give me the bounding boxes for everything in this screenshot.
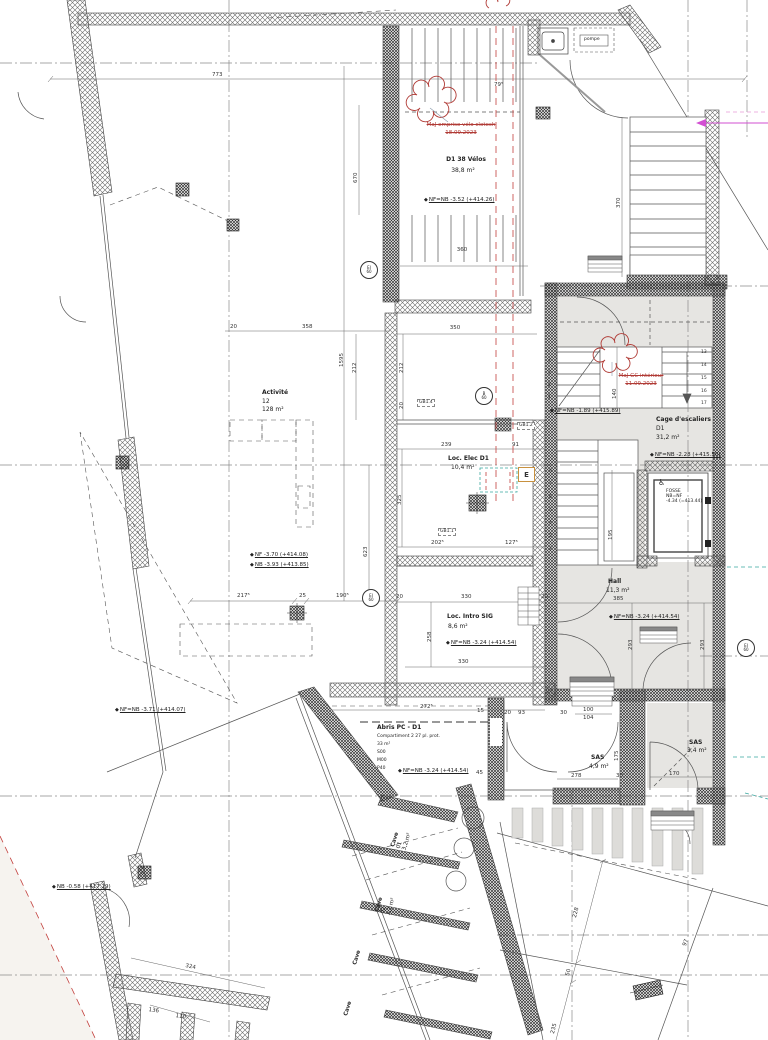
room-area-loc-intro: 8,6 m² <box>448 624 468 631</box>
room-label-cave1: Cave 01 3,2 m² <box>390 829 412 852</box>
electrical-tag-letter: E <box>524 471 529 479</box>
level-velos: ◆NF=NB -3.52 (+414.26) <box>424 197 495 203</box>
fire-tag-bottom: 60 <box>368 598 373 603</box>
stair-number: 16 <box>701 389 707 394</box>
dim-385: 385 <box>613 596 624 603</box>
dim-330b: 330 <box>458 659 469 666</box>
level-cage-bottom: ◆NF=NB -2.28 (+415.50) <box>650 452 721 458</box>
annotation-layer: D1 38 Vélos 38,8 m² Activité 12 128 m² L… <box>0 0 768 1040</box>
stair-number: 17 <box>701 401 707 406</box>
dim-324: 324 <box>185 963 197 972</box>
dim-623: 623 <box>363 547 370 558</box>
level-intro: ◆NF=NB -3.24 (+414.54) <box>446 640 517 646</box>
stair-number: 5 <box>549 508 552 513</box>
level-marker-icon: ◆ <box>52 884 56 890</box>
dim-293b: 293 <box>700 640 707 651</box>
abris-s00: S00 <box>377 750 386 755</box>
fire-tag-bottom: 60 <box>743 648 748 653</box>
revision-note-gc-1: MaJ GC intérieur <box>619 373 664 380</box>
dim-15: 15 <box>477 708 484 715</box>
level-hall-text: NF=NB -3.24 (+414.54) <box>614 614 680 620</box>
fire-rating-tag: EI60 <box>360 261 378 279</box>
room-area-hall: 11,3 m² <box>606 588 630 595</box>
stair-number: 14 <box>701 363 707 368</box>
room-label-loc-elec: Loc. Elec D1 <box>448 456 489 463</box>
dim-20b: 20 <box>399 402 406 409</box>
revision-note-velo-1: MaJ emprise vélo clotech <box>427 122 496 129</box>
room-label-hall: Hall <box>608 579 621 586</box>
dim-30b: 30 <box>616 773 623 780</box>
dim-175: 175 <box>614 751 621 762</box>
dim-370: 370 <box>616 198 623 209</box>
level-exterior-text: NB -0.58 (+417.19) <box>57 884 111 890</box>
room-area-sas1: 4,9 m² <box>589 764 609 771</box>
dim-20c: 20 <box>396 594 403 601</box>
dim-258: 258 <box>427 632 434 643</box>
dim-45: 45 <box>476 770 483 777</box>
dim-140: 140 <box>612 389 619 400</box>
dim-104: 104 <box>583 715 594 722</box>
room-label-cave2: Cave 02 3,2 m² <box>374 894 396 917</box>
room-label-abris: Abris PC - D1 <box>377 725 421 732</box>
abris-compartiment: Compartiment 2 27 pl. prot. <box>377 734 440 739</box>
level-abris-text: NF=NB -3.24 (+414.54) <box>403 768 469 774</box>
stair-number: 7 <box>549 482 552 487</box>
level-activite-nf: ◆NF -3.70 (+414.08) <box>250 552 308 558</box>
level-door-text: NF=NB -3.71 (+414.07) <box>120 707 186 713</box>
fire-rating-tag: B60 <box>475 387 493 405</box>
dim-79: 79⁵ <box>494 82 503 89</box>
fire-rating-tag: EI60 <box>737 639 755 657</box>
room-area-velos: 38,8 m² <box>451 168 475 175</box>
stair-number: 8 <box>549 469 552 474</box>
dim-20a: 20 <box>230 324 237 331</box>
dim-30a: 30 <box>560 710 567 717</box>
level-door: ◆NF=NB -3.71 (+414.07) <box>115 707 186 713</box>
dim-195: 195 <box>608 530 615 541</box>
level-marker-icon: ◆ <box>115 707 119 713</box>
dim-20e: 20 <box>504 710 511 717</box>
level-activite-nb: ◆NB -3.93 (+413.85) <box>250 562 309 568</box>
room-label-sas2: SAS <box>689 740 702 747</box>
level-activite-nf-text: NF -3.70 (+414.08) <box>255 552 308 558</box>
stair-number: 3 <box>548 371 551 376</box>
level-exterior: ◆NB -0.58 (+417.19) <box>52 884 111 890</box>
abris-area: 33 m² <box>377 742 390 747</box>
tag-gb14: GB1.4 <box>417 399 435 407</box>
wheelchair-icon: ♿ <box>658 478 665 487</box>
pompe-tag: pompe <box>584 37 600 42</box>
dim-360: 360 <box>457 247 468 254</box>
abris-p40: P40 <box>377 766 385 771</box>
level-marker-icon: ◆ <box>424 197 428 203</box>
room-area-loc-elec: 10,4 m² <box>451 465 475 472</box>
dim-190: 190⁵ <box>336 593 349 600</box>
abris-m00: M00 <box>377 758 387 763</box>
stair-number: 15 <box>701 376 707 381</box>
dim-50: 50 <box>565 968 573 976</box>
stair-number: 2 <box>548 383 551 388</box>
level-marker-icon: ◆ <box>398 768 402 774</box>
room-label-loc-intro: Loc. Intro SIG <box>447 614 493 621</box>
dim-293a: 293 <box>628 640 635 651</box>
dim-100: 100 <box>583 707 594 714</box>
dim-278: 278 <box>571 773 582 780</box>
room-area-sas2: 3,4 m² <box>687 748 707 755</box>
level-cage-top-text: NF=NB -1.89 (+415.89) <box>555 408 621 414</box>
stair-number: 3 <box>549 534 552 539</box>
level-marker-icon: ◆ <box>250 562 254 568</box>
dim-350: 350 <box>450 325 461 332</box>
dim-20d: 20 <box>541 594 548 601</box>
dim-212a: 212 <box>352 363 359 374</box>
revision-note-gc-2: 11.09.2023 <box>625 381 657 388</box>
level-velos-text: NF=NB -3.52 (+414.26) <box>429 197 495 203</box>
level-marker-icon: ◆ <box>650 452 654 458</box>
level-cage-top: ◆NF=NB -1.89 (+415.89) <box>550 408 621 414</box>
fire-rating-tag: EI60 <box>362 589 380 607</box>
room-num-activite: 12 <box>262 399 270 406</box>
dim-239: 239 <box>441 442 452 449</box>
stair-number: 6 <box>549 495 552 500</box>
tag-gb12: GB1.2 <box>517 422 535 430</box>
stair-number: 4 <box>548 359 551 364</box>
level-marker-icon: ◆ <box>250 552 254 558</box>
room-label-sas1: SAS <box>591 755 604 762</box>
dim-97: 97 <box>682 938 691 947</box>
room-num-cage: D1 <box>656 426 664 433</box>
tag-gb11: GB1.1 <box>438 528 456 536</box>
room-label-cave4: Cave <box>343 1001 353 1017</box>
electrical-tag: E <box>518 467 535 482</box>
dim-110: 110 <box>175 1013 186 1021</box>
cave3-title: Cave <box>352 950 362 966</box>
revision-note-velo-2: 18.09.2023 <box>445 130 477 137</box>
dim-272: 272⁵ <box>420 704 433 711</box>
dim-228: 228 <box>572 907 581 919</box>
level-intro-text: NF=NB -3.24 (+414.54) <box>451 640 517 646</box>
dim-325: 325 <box>397 495 404 506</box>
stair-number: 13 <box>701 350 707 355</box>
room-label-activite: Activité <box>262 390 288 397</box>
dim-217: 217⁵ <box>237 593 250 600</box>
stair-number: 2 <box>549 547 552 552</box>
dim-212b: 212 <box>399 363 406 374</box>
room-label-cage: Cage d'escaliers <box>656 417 711 424</box>
fire-tag-bottom: 60 <box>481 396 486 401</box>
dim-235: 235 <box>550 1023 559 1035</box>
stair-number: 4 <box>549 521 552 526</box>
dim-1595: 1595 <box>339 353 346 367</box>
room-area-cage: 31,2 m² <box>656 435 680 442</box>
dim-773: 773 <box>212 72 223 79</box>
level-activite-nb-text: NB -3.93 (+413.85) <box>255 562 309 568</box>
level-marker-icon: ◆ <box>550 408 554 414</box>
dim-25: 25 <box>299 593 306 600</box>
dim-202: 202⁵ <box>431 540 444 547</box>
dim-127: 127⁵ <box>505 540 518 547</box>
dim-330a: 330 <box>461 594 472 601</box>
cave4-title: Cave <box>343 1001 353 1017</box>
level-hall: ◆NF=NB -3.24 (+414.54) <box>609 614 680 620</box>
dim-136: 136 <box>148 1007 159 1015</box>
dim-358: 358 <box>302 324 313 331</box>
stair-number: 1 <box>548 395 551 400</box>
level-abris: ◆NF=NB -3.24 (+414.54) <box>398 768 469 774</box>
level-marker-icon: ◆ <box>609 614 613 620</box>
dim-91: 91 <box>512 442 519 449</box>
dim-670: 670 <box>353 173 360 184</box>
room-label-velos: D1 38 Vélos <box>446 157 486 164</box>
level-cage-bottom-text: NF=NB -2.28 (+415.50) <box>655 452 721 458</box>
dim-170: 170 <box>669 771 680 778</box>
room-label-cave3: Cave <box>352 950 362 966</box>
floor-plan-canvas: D1 38 Vélos 38,8 m² Activité 12 128 m² L… <box>0 0 768 1040</box>
level-marker-icon: ◆ <box>446 640 450 646</box>
fosse-line3: -4.34 (=413.44) <box>666 499 702 504</box>
fire-tag-bottom: 60 <box>366 270 371 275</box>
room-area-activite: 128 m² <box>262 407 284 414</box>
dim-93: 93 <box>518 710 525 717</box>
